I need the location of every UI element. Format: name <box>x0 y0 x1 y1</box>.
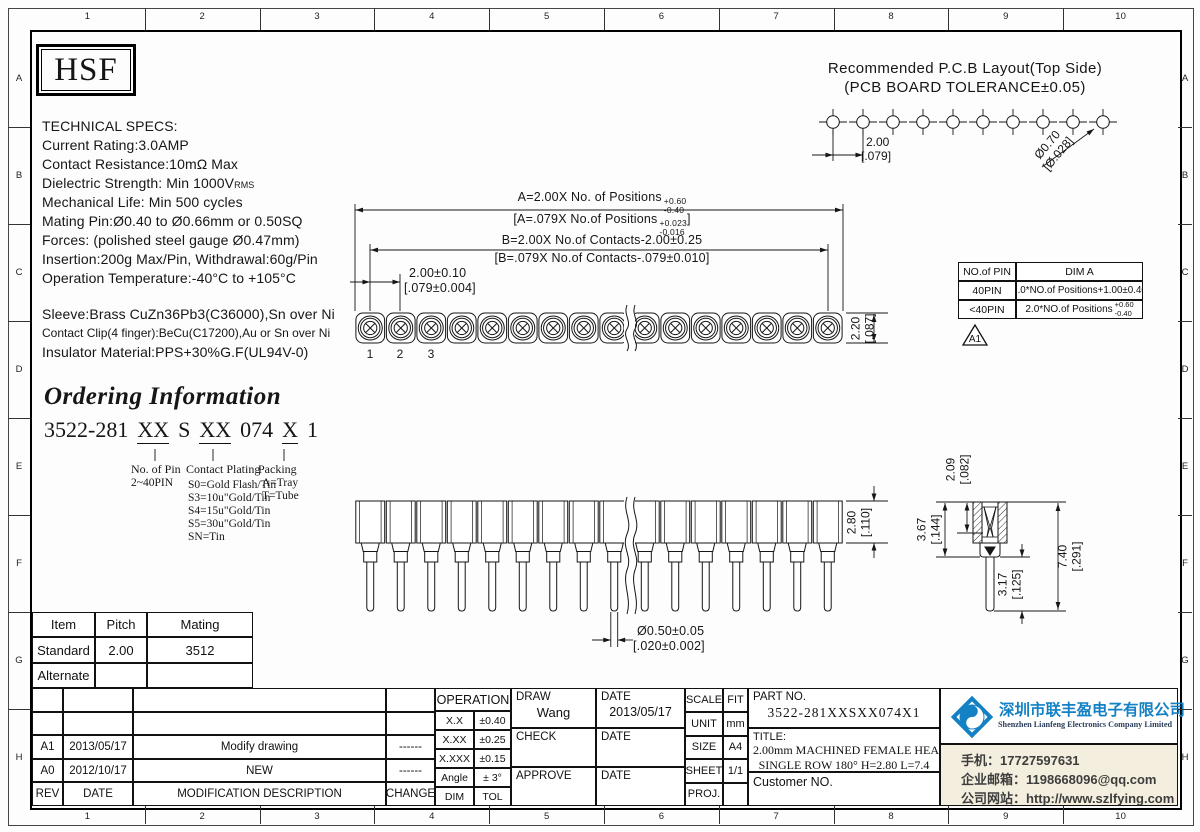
code-074: 074 <box>240 417 273 444</box>
ruler-tick <box>948 806 949 824</box>
dim-table-r2-pin: <40PIN <box>958 300 1016 319</box>
dim-overall-height: 7.40[.291] <box>1057 525 1084 589</box>
rev-table-cell: REV <box>32 782 63 806</box>
ruler-col-label: 7 <box>719 811 834 822</box>
meta-label-cell: UNIT <box>685 712 723 736</box>
ruler-tick <box>1178 224 1192 225</box>
ruler-col-label: 10 <box>1063 11 1178 22</box>
dim-pitch: 2.00±0.10 <box>409 266 466 280</box>
tolerance-value-cell: ±0.25 <box>474 730 511 749</box>
dim-socket-height: 2.20[.087] <box>850 297 877 361</box>
rev-table-cell <box>32 712 63 736</box>
rev-table-cell: DATE <box>63 782 133 806</box>
title-cell: TITLE: 2.00mm MACHINED FEMALE HEADER SIN… <box>748 728 940 772</box>
hsf-logo: HSF <box>36 44 136 96</box>
ruler-tick <box>489 806 490 824</box>
ruler-tick <box>1063 806 1064 824</box>
rev-table-cell: A0 <box>32 759 63 783</box>
pin-count-label: No. of Pin <box>131 462 181 477</box>
company-name-en: Shenzhen Lianfeng Electronics Company Li… <box>998 720 1172 729</box>
rev-table-cell: ------ <box>386 759 435 783</box>
rev-table-cell <box>63 688 133 712</box>
ruler-tick <box>8 224 30 225</box>
company-phone: 手机：17727597631 <box>961 750 1080 769</box>
ruler-row-label: H <box>8 709 30 806</box>
ruler-tick <box>1178 709 1192 710</box>
company-email: 企业邮箱：1198668096@qq.com <box>961 769 1156 788</box>
ruler-col-label: 3 <box>260 811 375 822</box>
rev-table-cell <box>63 712 133 736</box>
code-pin-count: XX <box>137 417 169 444</box>
ruler-row-label: E <box>1178 418 1192 515</box>
item-table-h-mating: Mating <box>147 612 253 637</box>
ruler-tick <box>1178 321 1192 322</box>
ruler-row-label: D <box>1178 321 1192 418</box>
spec-resistance: Contact Resistance:10mΩ Max <box>42 156 238 172</box>
ruler-tick <box>8 418 30 419</box>
item-table-standard: Standard <box>32 637 95 663</box>
draw-name: Wang <box>516 705 591 720</box>
dim-insertion-depth: 2.09[.082] <box>945 438 972 502</box>
meta-label-cell: PROJ. <box>685 783 723 807</box>
ruler-tick <box>834 8 835 30</box>
tolerance-value-cell: ± 3° <box>474 768 511 787</box>
dim-table-r1-pin: 40PIN <box>958 281 1016 300</box>
rev-table-cell <box>32 688 63 712</box>
ruler-col-label: 5 <box>489 11 604 22</box>
code-s: S <box>178 417 190 444</box>
meta-value-cell: FIT <box>723 688 748 712</box>
ruler-tick <box>604 806 605 824</box>
packing-option: A=Tray <box>262 477 298 489</box>
ruler-tick <box>948 8 949 30</box>
spec-forces: Forces: (polished steel gauge Ø0.47mm) <box>42 232 299 248</box>
dim-table-r2-text: 2.0*NO.of Positions <box>1025 304 1112 315</box>
dim-table-header-dim: DIM A <box>1016 262 1143 281</box>
operation-header: OPERATION <box>435 688 511 711</box>
draw-date-value: 2013/05/17 <box>601 705 680 719</box>
rev-table-cell <box>133 712 386 736</box>
ruler-col-label: 10 <box>1063 811 1178 822</box>
revision-flag-triangle: A1 <box>960 322 990 348</box>
item-table-alternate-mating <box>147 663 253 688</box>
dim-table-header-pin: NO.of PIN <box>958 262 1016 281</box>
pin-number-3: 3 <box>425 347 437 361</box>
ruler-col-label: 7 <box>719 11 834 22</box>
pin-count-range: 2~40PIN <box>131 477 173 489</box>
dim-body-inch: [.110] <box>859 491 873 555</box>
dim-body-metric: 2.80 <box>846 491 860 555</box>
ruler-row-label: H <box>1178 709 1192 806</box>
company-logo-icon <box>948 693 996 741</box>
dim-depth-metric: 2.09 <box>945 438 959 502</box>
ruler-tick <box>489 8 490 30</box>
ruler-tick <box>834 806 835 824</box>
customer-no-cell: Customer NO. <box>748 772 940 806</box>
tolerance-value-cell: ±0.40 <box>474 711 511 730</box>
rev-table-cell: MODIFICATION DESCRIPTION <box>133 782 386 806</box>
part-no-label: PART NO. <box>753 691 806 703</box>
rev-table-cell: ------ <box>386 735 435 759</box>
dim-a-inch-text: [A=.079X No.of Positions <box>513 212 657 226</box>
rev-table-cell: Modify drawing <box>133 735 386 759</box>
ruler-tick <box>260 806 261 824</box>
pin-number-2: 2 <box>394 347 406 361</box>
dim-pitch-inch: [.079±0.004] <box>404 281 476 295</box>
ruler-tick <box>8 127 30 128</box>
rev-table-cell <box>133 688 386 712</box>
rev-table-cell: A1 <box>32 735 63 759</box>
plating-option: S5=30u"Gold/Tin <box>188 518 270 530</box>
spec-mating: Mating Pin:Ø0.40 to Ø0.66mm or 0.50SQ <box>42 213 303 229</box>
draw-cell: DRAW Wang <box>511 688 596 728</box>
tech-specs-title: TECHNICAL SPECS: <box>42 118 178 134</box>
ruler-row-label: A <box>1178 30 1192 127</box>
ruler-col-label: 3 <box>260 11 375 22</box>
hsf-logo-text: HSF <box>54 52 118 89</box>
ruler-row-label: C <box>8 224 30 321</box>
ruler-tick <box>1178 612 1192 613</box>
code-suffix: 1 <box>307 417 318 444</box>
pcb-layout-title: Recommended P.C.B Layout(Top Side) <box>790 60 1140 77</box>
material-clip: Contact Clip(4 finger):BeCu(C17200),Au o… <box>42 326 330 340</box>
ruler-row-label: E <box>8 418 30 515</box>
meta-label-cell: SIZE <box>685 736 723 760</box>
spec-dielectric: Dielectric Strength: Min 1000VRMS <box>42 175 254 191</box>
packing-option: T=Tube <box>262 490 299 502</box>
draw-date-label: DATE <box>601 691 631 703</box>
ruler-tick <box>374 8 375 30</box>
dim-overall-inch: [.291] <box>1070 525 1084 589</box>
meta-value-cell: A4 <box>723 736 748 760</box>
dim-height-inch: [.087] <box>863 297 877 361</box>
ruler-col-label: 5 <box>489 811 604 822</box>
part-no-value: 3522-281XXSXX074X1 <box>753 705 935 721</box>
rev-table-cell <box>386 712 435 736</box>
dim-overall-metric: 7.40 <box>1057 525 1071 589</box>
ruler-row-label: C <box>1178 224 1192 321</box>
part-no-cell: PART NO. 3522-281XXSXX074X1 <box>748 688 940 728</box>
ruler-col-label: 8 <box>834 11 949 22</box>
tolerance-dim-cell: X.X <box>435 711 474 730</box>
rev-table-cell <box>386 688 435 712</box>
dim-sleeve-inch: [.144] <box>929 498 943 562</box>
ruler-tick <box>1178 127 1192 128</box>
ruler-col-label: 4 <box>374 11 489 22</box>
ruler-tick <box>374 806 375 824</box>
approve-label: APPROVE <box>516 770 572 782</box>
ruler-tick <box>719 806 720 824</box>
title-label: TITLE: <box>753 731 786 743</box>
customer-no-label: Customer NO. <box>753 775 833 789</box>
meta-value-cell: 1/1 <box>723 759 748 783</box>
ruler-tick <box>8 321 30 322</box>
item-table-alternate-pitch <box>95 663 147 688</box>
dim-sleeve-metric: 3.67 <box>916 498 930 562</box>
dim-depth-inch: [.082] <box>958 438 972 502</box>
ruler-tick <box>1178 515 1192 516</box>
dim-table-r1-dim: 2.0*NO.of Positions+1.00±0.40 <box>1016 281 1143 300</box>
ordering-part-code: 3522-281 XX S XX 074 X 1 <box>44 417 318 444</box>
code-packing: X <box>282 417 298 444</box>
ruler-col-label: 9 <box>948 811 1063 822</box>
tolerance-dim-cell: X.XXX <box>435 749 474 768</box>
meta-label-cell: SHEET <box>685 759 723 783</box>
approve-date-cell: DATE <box>596 767 685 806</box>
packing-label: Packing <box>258 462 297 477</box>
company-contact-cell: 手机：17727597631 企业邮箱：1198668096@qq.com 公司… <box>940 744 1178 806</box>
title-line-2: SINGLE ROW 180° H=2.80 L=7.4 <box>753 758 935 772</box>
rev-table-cell: CHANGE <box>386 782 435 806</box>
dim-a-text: A=2.00X No. of Positions <box>518 190 662 204</box>
meta-label-cell: SCALE <box>685 688 723 712</box>
material-sleeve: Sleeve:Brass CuZn36Pb3(C36000),Sn over N… <box>42 306 335 322</box>
check-date-label: DATE <box>601 731 631 743</box>
ruler-col-label: 1 <box>30 11 145 22</box>
ruler-row-label: G <box>8 612 30 709</box>
plating-option: S4=15u"Gold/Tin <box>188 505 270 517</box>
ordering-title: Ordering Information <box>44 383 281 411</box>
spec-insertion: Insertion:200g Max/Pin, Withdrawal:60g/P… <box>42 251 318 267</box>
ruler-tick <box>8 612 30 613</box>
dim-tail-inch: [.125] <box>1010 553 1024 617</box>
draw-label: DRAW <box>516 691 551 703</box>
pcb-layout-tolerance: (PCB BOARD TOLERANCE±0.05) <box>790 79 1140 96</box>
ruler-col-label: 1 <box>30 811 145 822</box>
item-table-h-item: Item <box>32 612 95 637</box>
ruler-row-label: B <box>1178 127 1192 224</box>
ruler-row-label: B <box>8 127 30 224</box>
ruler-col-label: 2 <box>145 11 260 22</box>
ruler-row-label: F <box>8 515 30 612</box>
ruler-tick <box>8 709 30 710</box>
pcb-pitch-dim: 2.00 <box>866 135 889 149</box>
title-line-1: 2.00mm MACHINED FEMALE HEADER <box>753 743 935 758</box>
tolerance-dim-cell: DIM <box>435 787 474 806</box>
plating-option: S3=10u"Gold/Tin <box>188 492 270 504</box>
plating-label: Contact Plating <box>186 462 260 477</box>
draw-date-cell: DATE 2013/05/17 <box>596 688 685 728</box>
meta-value-cell: mm <box>723 712 748 736</box>
plating-option: SN=Tin <box>188 531 225 543</box>
ruler-tick <box>604 8 605 30</box>
tolerance-value-cell: ±0.15 <box>474 749 511 768</box>
ruler-tick <box>145 8 146 30</box>
spec-current: Current Rating:3.0AMP <box>42 137 189 153</box>
dim-height-metric: 2.20 <box>850 297 864 361</box>
dim-b-metric: B=2.00X No.of Contacts-2.00±0.25 <box>437 233 767 247</box>
dim-b-inch: [B=.079X No.of Contacts-.079±0.010] <box>437 251 767 265</box>
rev-table-cell: NEW <box>133 759 386 783</box>
company-header-cell: 深圳市联丰盈电子有限公司 Shenzhen Lianfeng Electroni… <box>940 688 1178 744</box>
ruler-row-label: F <box>1178 515 1192 612</box>
ruler-col-label: 8 <box>834 811 949 822</box>
ruler-col-label: 6 <box>604 811 719 822</box>
item-table-h-pitch: Pitch <box>95 612 147 637</box>
dim-table-r2-dim: 2.0*NO.of Positions+0.60-0.40 <box>1016 300 1143 319</box>
ruler-col-label: 4 <box>374 811 489 822</box>
code-prefix: 3522-281 <box>44 417 128 444</box>
dim-tail-length: 3.17[.125] <box>997 553 1024 617</box>
check-date-cell: DATE <box>596 728 685 767</box>
dim-body-height: 2.80[.110] <box>846 491 873 555</box>
rev-table-cell: 2012/10/17 <box>63 759 133 783</box>
dim-a-inch-close: ] <box>687 212 691 226</box>
ruler-tick <box>8 515 30 516</box>
ruler-tick <box>1063 8 1064 30</box>
ruler-tick <box>260 8 261 30</box>
check-cell: CHECK <box>511 728 596 767</box>
spec-dielectric-sub: RMS <box>234 180 254 190</box>
dim-pin-dia-inch: [.020±0.002] <box>633 639 705 653</box>
ruler-row-label: A <box>8 30 30 127</box>
engineering-drawing-page: HSF TECHNICAL SPECS: Current Rating:3.0A… <box>0 0 1200 832</box>
rev-table-cell: 2013/05/17 <box>63 735 133 759</box>
pin-number-1: 1 <box>364 347 376 361</box>
spec-dielectric-text: Dielectric Strength: Min 1000V <box>42 175 234 191</box>
code-plating: XX <box>199 417 231 444</box>
ruler-col-label: 9 <box>948 11 1063 22</box>
ruler-col-label: 6 <box>604 11 719 22</box>
approve-date-label: DATE <box>601 770 631 782</box>
material-insulator: Insulator Material:PPS+30%G.F(UL94V-0) <box>42 344 308 360</box>
meta-value-cell <box>723 783 748 807</box>
dim-sleeve-height: 3.67[.144] <box>916 498 943 562</box>
ruler-tick <box>719 8 720 30</box>
spec-life: Mechanical Life: Min 500 cycles <box>42 194 243 210</box>
dim-pin-dia: Ø0.50±0.05 <box>637 624 704 638</box>
tolerance-dim-cell: X.XX <box>435 730 474 749</box>
spec-temperature: Operation Temperature:-40°C to +105°C <box>42 270 296 286</box>
approve-cell: APPROVE <box>511 767 596 806</box>
dim-table-r2-minus: -0.40 <box>1115 310 1134 318</box>
ruler-row-label: G <box>1178 612 1192 709</box>
check-label: CHECK <box>516 731 556 743</box>
ruler-tick <box>145 806 146 824</box>
item-table-standard-pitch: 2.00 <box>95 637 147 663</box>
item-table-standard-mating: 3512 <box>147 637 253 663</box>
svg-text:A1: A1 <box>969 334 982 345</box>
ruler-row-label: D <box>8 321 30 418</box>
tolerance-dim-cell: Angle <box>435 768 474 787</box>
pcb-pitch-dim-inch: [.079] <box>861 149 891 163</box>
company-name-cn: 深圳市联丰盈电子有限公司 <box>999 698 1185 720</box>
ruler-tick <box>1178 418 1192 419</box>
tolerance-value-cell: TOL <box>474 787 511 806</box>
ruler-col-label: 2 <box>145 811 260 822</box>
item-table-alternate: Alternate <box>32 663 95 688</box>
dim-tail-metric: 3.17 <box>997 553 1011 617</box>
company-website: 公司网站：http://www.szlfying.com <box>961 788 1174 807</box>
